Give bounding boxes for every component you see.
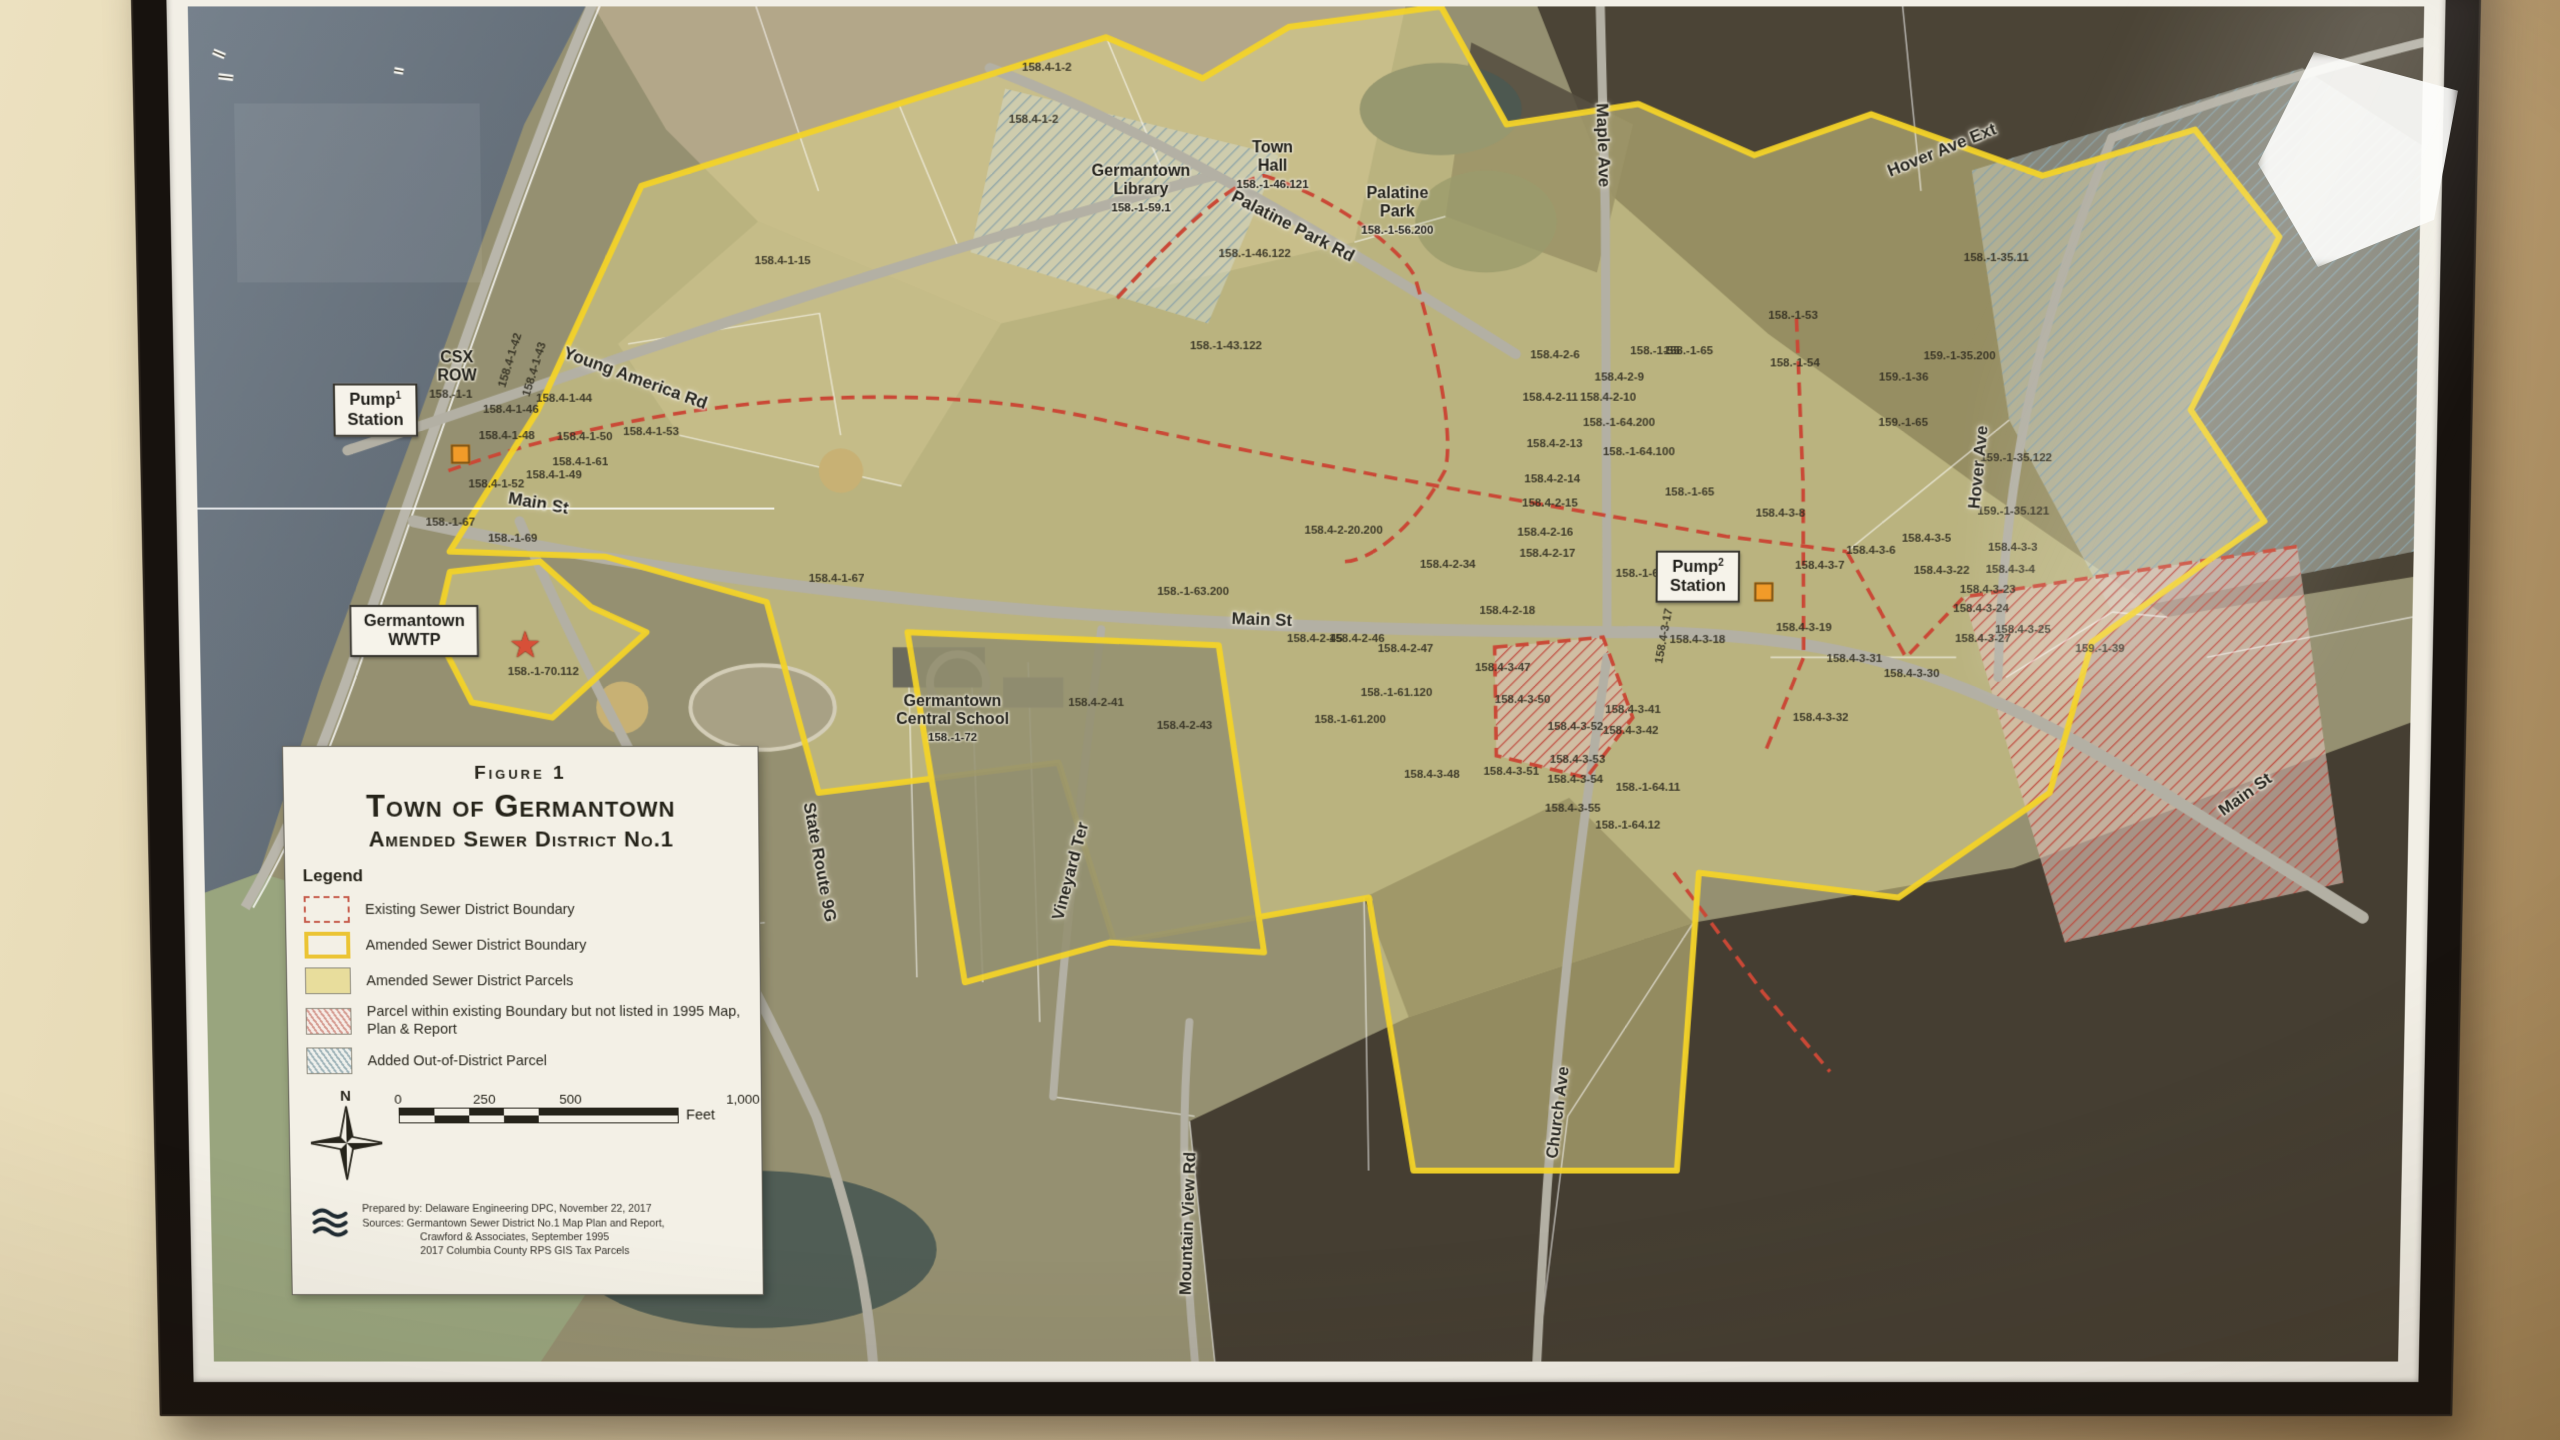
- map-credits: Prepared by: Delaware Engineering DPC, N…: [362, 1202, 665, 1258]
- credit-line: Prepared by: Delaware Engineering DPC, N…: [362, 1202, 664, 1216]
- existing-boundary-swatch: [303, 896, 349, 923]
- legend-heading: Legend: [303, 867, 741, 887]
- pump-station-marker: [451, 444, 470, 463]
- credit-line: Sources: Germantown Sewer District No.1 …: [362, 1217, 664, 1231]
- delaware-engineering-logo-icon: [309, 1202, 351, 1243]
- legend-item-amended-parcels: Amended Sewer District Parcels: [304, 968, 742, 995]
- legend-item-out-of-district: Added Out-of-District Parcel: [306, 1048, 743, 1075]
- scale-bar-segments: [398, 1108, 678, 1124]
- legend-items: Existing Sewer District BoundaryAmended …: [303, 896, 743, 1074]
- glass-scratch-line: [197, 507, 773, 509]
- legend-item-label: Amended Sewer District Parcels: [366, 972, 573, 990]
- legend-box: Figure 1 Town of Germantown Amended Sewe…: [282, 746, 764, 1295]
- north-arrow: N: [307, 1088, 386, 1186]
- credit-line: Crawford & Associates, September 1995: [363, 1231, 665, 1245]
- compass-rose-icon: [310, 1105, 383, 1182]
- legend-item-label: Amended Sewer District Boundary: [366, 936, 587, 954]
- scale-bar-row: [399, 1116, 677, 1123]
- legend-item-amended-boundary: Amended Sewer District Boundary: [304, 932, 742, 959]
- figure-label: Figure 1: [301, 763, 740, 785]
- wwtp-star-marker: ★: [509, 626, 542, 662]
- map-subtitle: Amended Sewer District No.1: [302, 827, 741, 853]
- scale-bar: 02505001,000 Feet: [398, 1088, 743, 1123]
- scale-unit: Feet: [686, 1108, 715, 1124]
- amended-parcels-swatch: [304, 968, 350, 995]
- legend-item-parcel-not-listed: Parcel within existing Boundary but not …: [305, 1003, 742, 1039]
- scale-tick: 250: [473, 1092, 496, 1107]
- amended-boundary-swatch: [304, 932, 350, 959]
- scale-tick: 0: [394, 1092, 402, 1107]
- scale-bar-row: [399, 1109, 677, 1116]
- legend-item-existing-boundary: Existing Sewer District Boundary: [303, 896, 741, 923]
- legend-item-label: Parcel within existing Boundary but not …: [367, 1003, 743, 1039]
- north-label: N: [307, 1088, 385, 1105]
- scale-tick: 1,000: [726, 1092, 760, 1107]
- credit-line: 2017 Columbia County RPS GIS Tax Parcels: [363, 1245, 665, 1259]
- legend-item-label: Added Out-of-District Parcel: [367, 1052, 547, 1070]
- legend-item-label: Existing Sewer District Boundary: [365, 901, 575, 919]
- sewer-district-map: 158.-1-1158.4-1-42158.4-1-43158.4-1-4415…: [188, 6, 2424, 1361]
- scale-ticks: 02505001,000: [398, 1092, 743, 1108]
- map-title: Town of Germantown: [301, 789, 740, 825]
- pump-station-marker: [1755, 582, 1774, 601]
- mat-border: 158.-1-1158.4-1-42158.4-1-43158.4-1-4415…: [166, 0, 2446, 1382]
- picture-frame: 158.-1-1158.4-1-42158.4-1-43158.4-1-4415…: [130, 0, 2482, 1416]
- out-of-district-swatch: [306, 1048, 352, 1075]
- scale-tick: 500: [559, 1092, 582, 1107]
- parcel-not-listed-swatch: [305, 1008, 351, 1035]
